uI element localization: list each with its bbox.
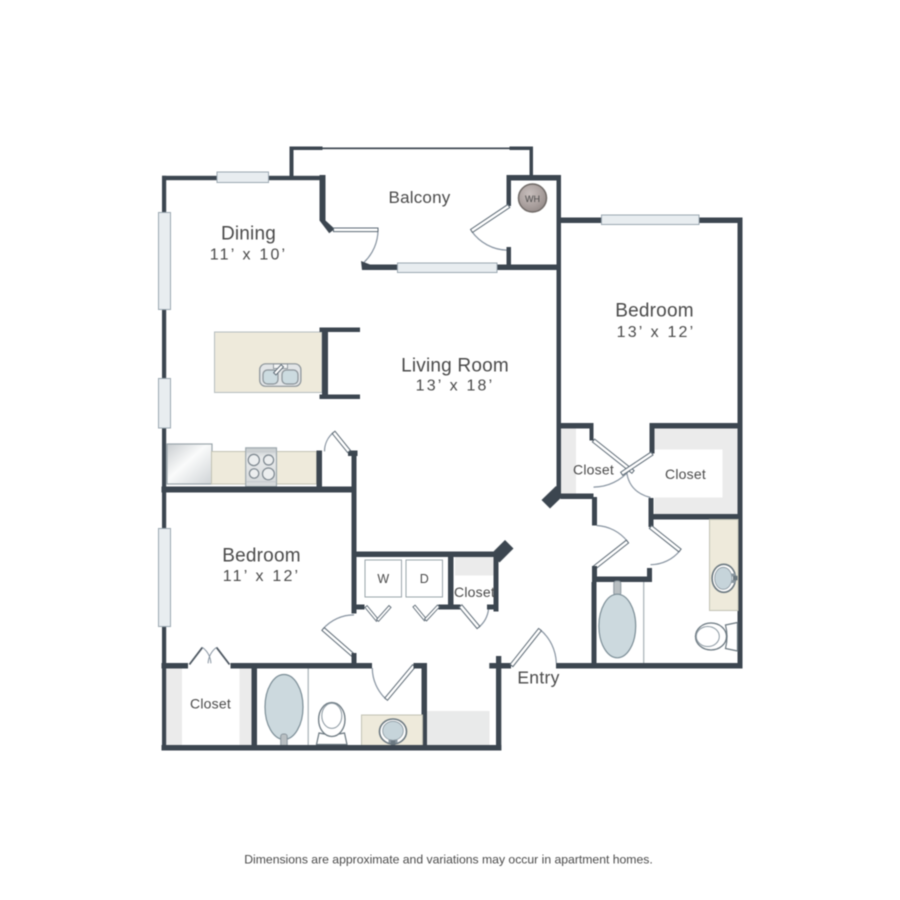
svg-text:11’ x 10’: 11’ x 10’ bbox=[210, 247, 288, 264]
svg-text:Closet: Closet bbox=[573, 462, 614, 478]
svg-text:Bedroom: Bedroom bbox=[615, 301, 694, 322]
svg-text:WH: WH bbox=[525, 194, 540, 204]
svg-text:Living Room: Living Room bbox=[401, 356, 509, 377]
svg-text:Dimensions are approximate and: Dimensions are approximate and variation… bbox=[244, 853, 652, 867]
svg-text:13’ x 18’: 13’ x 18’ bbox=[416, 378, 495, 395]
svg-text:Closet: Closet bbox=[665, 466, 706, 482]
svg-text:Closet: Closet bbox=[454, 584, 495, 600]
svg-text:Dining: Dining bbox=[221, 224, 276, 245]
svg-text:13’ x 12’: 13’ x 12’ bbox=[617, 324, 696, 341]
svg-text:Bedroom: Bedroom bbox=[222, 546, 301, 567]
svg-text:Closet: Closet bbox=[190, 696, 231, 712]
svg-text:W: W bbox=[377, 572, 389, 586]
svg-text:Balcony: Balcony bbox=[389, 188, 451, 207]
svg-text:D: D bbox=[420, 572, 429, 586]
svg-text:11’ x 12’: 11’ x 12’ bbox=[223, 568, 301, 585]
svg-text:Entry: Entry bbox=[517, 668, 559, 688]
